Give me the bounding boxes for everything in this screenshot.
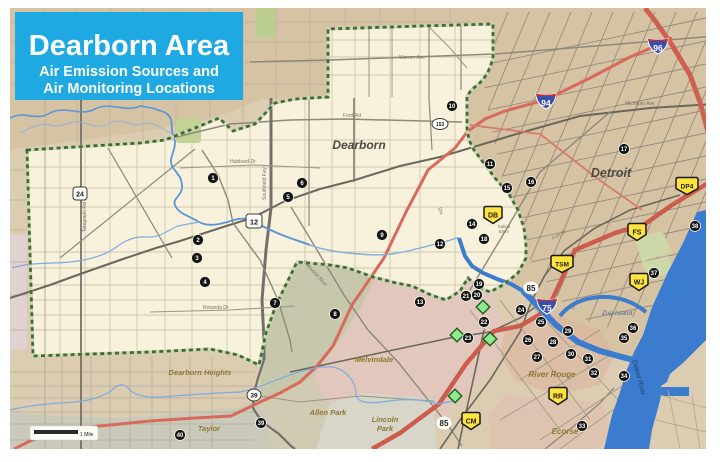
svg-text:DP4: DP4 [681, 183, 694, 190]
svg-text:Hubbard Dr: Hubbard Dr [230, 159, 256, 165]
svg-text:14: 14 [469, 222, 476, 228]
svg-text:27: 27 [534, 355, 541, 361]
svg-text:96: 96 [653, 43, 663, 53]
svg-text:94: 94 [541, 98, 551, 108]
svg-text:Zug Island: Zug Island [601, 310, 633, 317]
svg-text:18: 18 [481, 237, 488, 243]
svg-text:23: 23 [465, 336, 472, 342]
svg-text:RR: RR [553, 393, 563, 400]
svg-text:13: 13 [417, 300, 424, 306]
svg-text:TSM: TSM [555, 261, 569, 268]
svg-text:85: 85 [527, 284, 536, 293]
svg-text:Taylor: Taylor [198, 424, 221, 433]
svg-text:WJ: WJ [634, 279, 645, 286]
svg-text:75: 75 [542, 303, 552, 313]
svg-text:Southfield Fwy: Southfield Fwy [262, 167, 268, 200]
svg-text:28: 28 [550, 340, 557, 346]
svg-text:Ecorse: Ecorse [552, 427, 579, 436]
svg-text:Melvindale: Melvindale [355, 355, 393, 364]
svg-text:37: 37 [651, 271, 658, 277]
svg-text:40: 40 [177, 433, 184, 439]
svg-text:30: 30 [568, 352, 575, 358]
svg-text:Lincoln: Lincoln [372, 415, 399, 424]
svg-text:Allen Park: Allen Park [309, 408, 348, 417]
svg-text:12: 12 [250, 218, 258, 227]
svg-text:32: 32 [591, 371, 598, 377]
svg-text:Dearborn: Dearborn [332, 138, 385, 152]
svg-text:11: 11 [487, 162, 494, 168]
svg-text:24: 24 [518, 308, 525, 314]
svg-text:17: 17 [621, 147, 628, 153]
svg-text:Air Monitoring Locations: Air Monitoring Locations [43, 81, 215, 97]
svg-text:CM: CM [466, 418, 477, 425]
svg-text:Ford Rd: Ford Rd [343, 113, 361, 119]
svg-text:25: 25 [538, 320, 545, 326]
svg-text:24: 24 [76, 192, 84, 199]
svg-text:39: 39 [258, 421, 265, 427]
svg-text:Elem: Elem [499, 229, 510, 234]
svg-text:Dearborn Heights: Dearborn Heights [169, 368, 232, 377]
svg-text:Park: Park [377, 424, 394, 433]
svg-text:36: 36 [630, 326, 637, 332]
svg-text:20: 20 [474, 293, 481, 299]
svg-text:85: 85 [440, 419, 449, 428]
svg-text:12: 12 [437, 242, 444, 248]
svg-text:15: 15 [504, 186, 511, 192]
svg-text:Air Emission Sources and: Air Emission Sources and [39, 64, 219, 80]
svg-text:19: 19 [476, 282, 483, 288]
svg-text:Telegraph Rd: Telegraph Rd [82, 202, 88, 232]
svg-text:16: 16 [528, 180, 535, 186]
svg-text:38: 38 [692, 224, 699, 230]
svg-text:Dearborn Area: Dearborn Area [29, 30, 230, 62]
svg-text:Rotunda Dr: Rotunda Dr [203, 305, 229, 311]
svg-text:FS: FS [633, 229, 642, 236]
svg-text:22: 22 [481, 320, 488, 326]
svg-text:33: 33 [579, 424, 586, 430]
svg-text:Warren Ave: Warren Ave [399, 55, 425, 61]
svg-text:10: 10 [449, 104, 456, 110]
svg-text:River Rouge: River Rouge [528, 370, 576, 379]
svg-text:DB: DB [488, 212, 498, 219]
svg-text:34: 34 [621, 374, 628, 380]
svg-text:31: 31 [585, 357, 592, 363]
svg-text:153: 153 [436, 122, 445, 128]
svg-text:Detroit: Detroit [591, 166, 632, 180]
svg-text:1 Mile: 1 Mile [80, 432, 94, 438]
svg-text:26: 26 [525, 338, 532, 344]
svg-text:29: 29 [565, 329, 572, 335]
svg-text:21: 21 [463, 294, 470, 300]
svg-text:39: 39 [250, 392, 258, 399]
svg-text:Michigan Ave: Michigan Ave [625, 101, 655, 107]
svg-text:35: 35 [621, 336, 628, 342]
